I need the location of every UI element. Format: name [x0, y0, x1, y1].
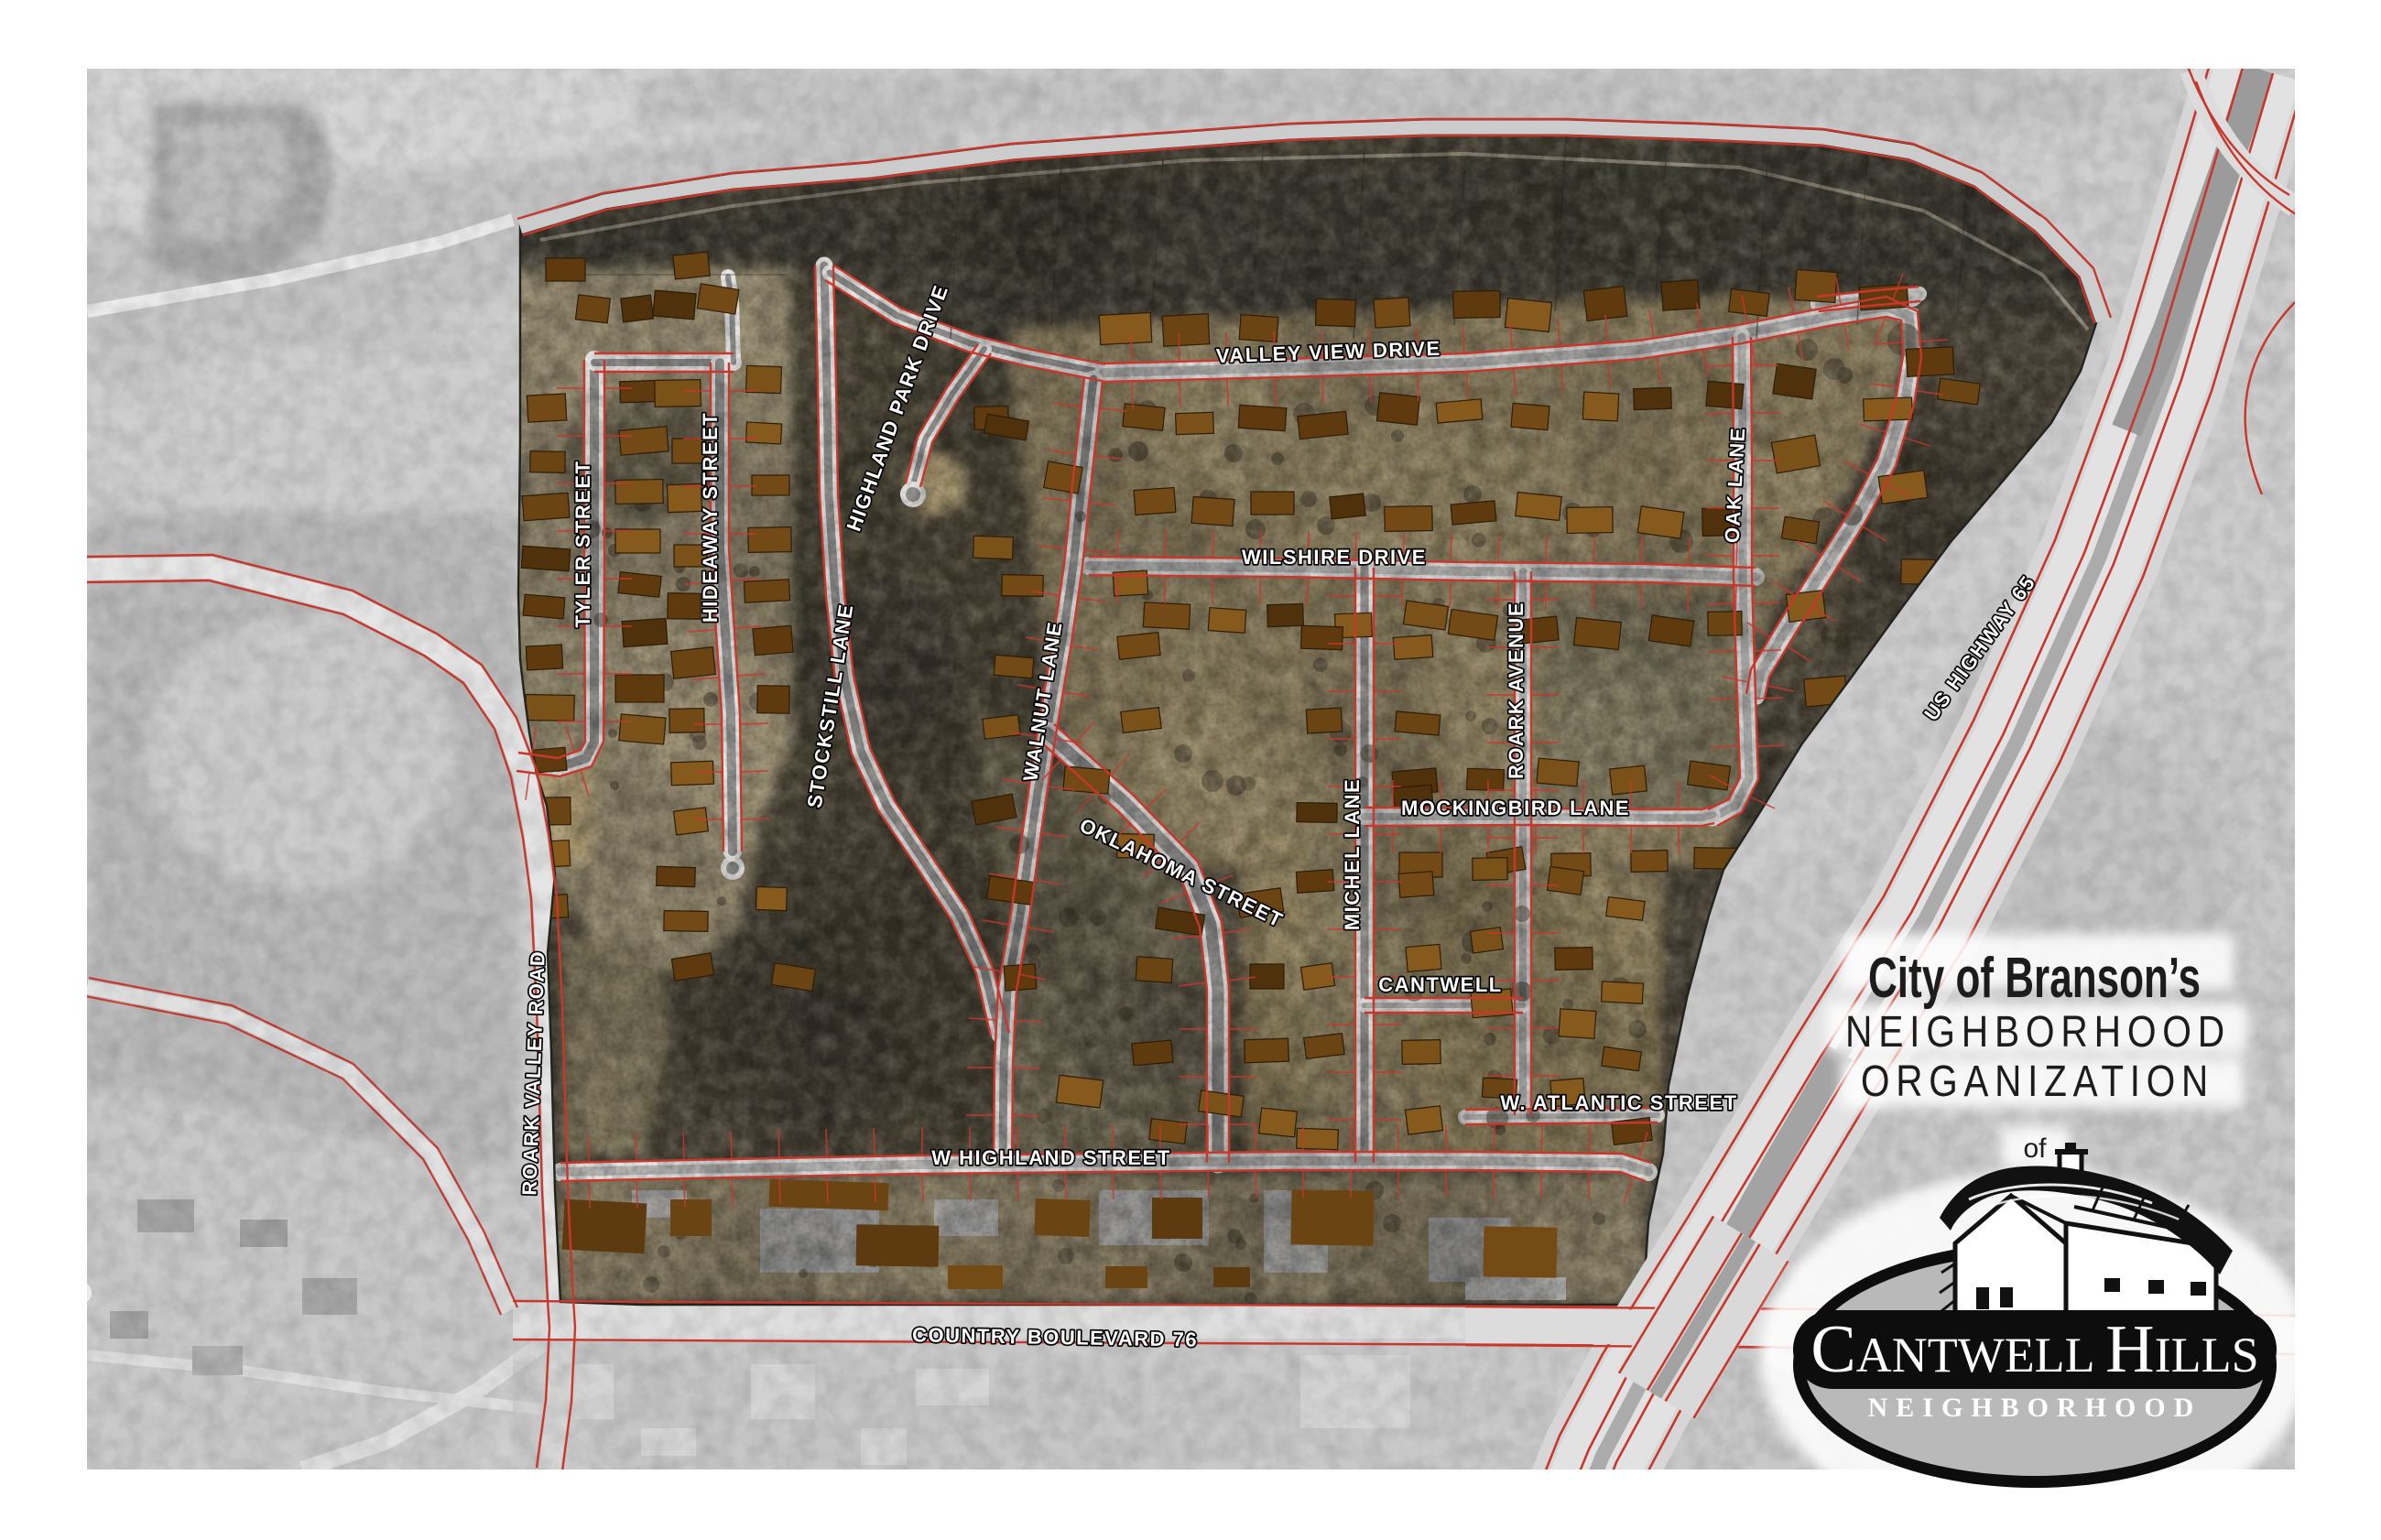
svg-text:MICHEL LANE: MICHEL LANE — [1341, 778, 1364, 930]
svg-text:NEIGHBORHOOD: NEIGHBORHOOD — [1868, 1393, 2202, 1423]
svg-text:ORGANIZATION: ORGANIZATION — [1861, 1057, 2214, 1106]
svg-text:of: of — [2023, 1133, 2047, 1164]
svg-text:HIDEAWAY STREET: HIDEAWAY STREET — [699, 412, 722, 623]
svg-text:CANTWELL: CANTWELL — [1378, 973, 1502, 996]
svg-text:MOCKINGBIRD LANE: MOCKINGBIRD LANE — [1401, 797, 1630, 819]
svg-text:ROARK AVENUE: ROARK AVENUE — [1505, 602, 1528, 779]
svg-text:City of Branson’s: City of Branson’s — [1868, 947, 2201, 1010]
svg-text:W HIGHLAND STREET: W HIGHLAND STREET — [931, 1146, 1170, 1169]
svg-text:WILSHIRE DRIVE: WILSHIRE DRIVE — [1242, 546, 1427, 569]
svg-text:W. ATLANTIC STREET: W. ATLANTIC STREET — [1500, 1091, 1737, 1114]
svg-text:NEIGHBORHOOD: NEIGHBORHOOD — [1845, 1008, 2231, 1057]
svg-text:TYLER STREET: TYLER STREET — [571, 460, 594, 627]
